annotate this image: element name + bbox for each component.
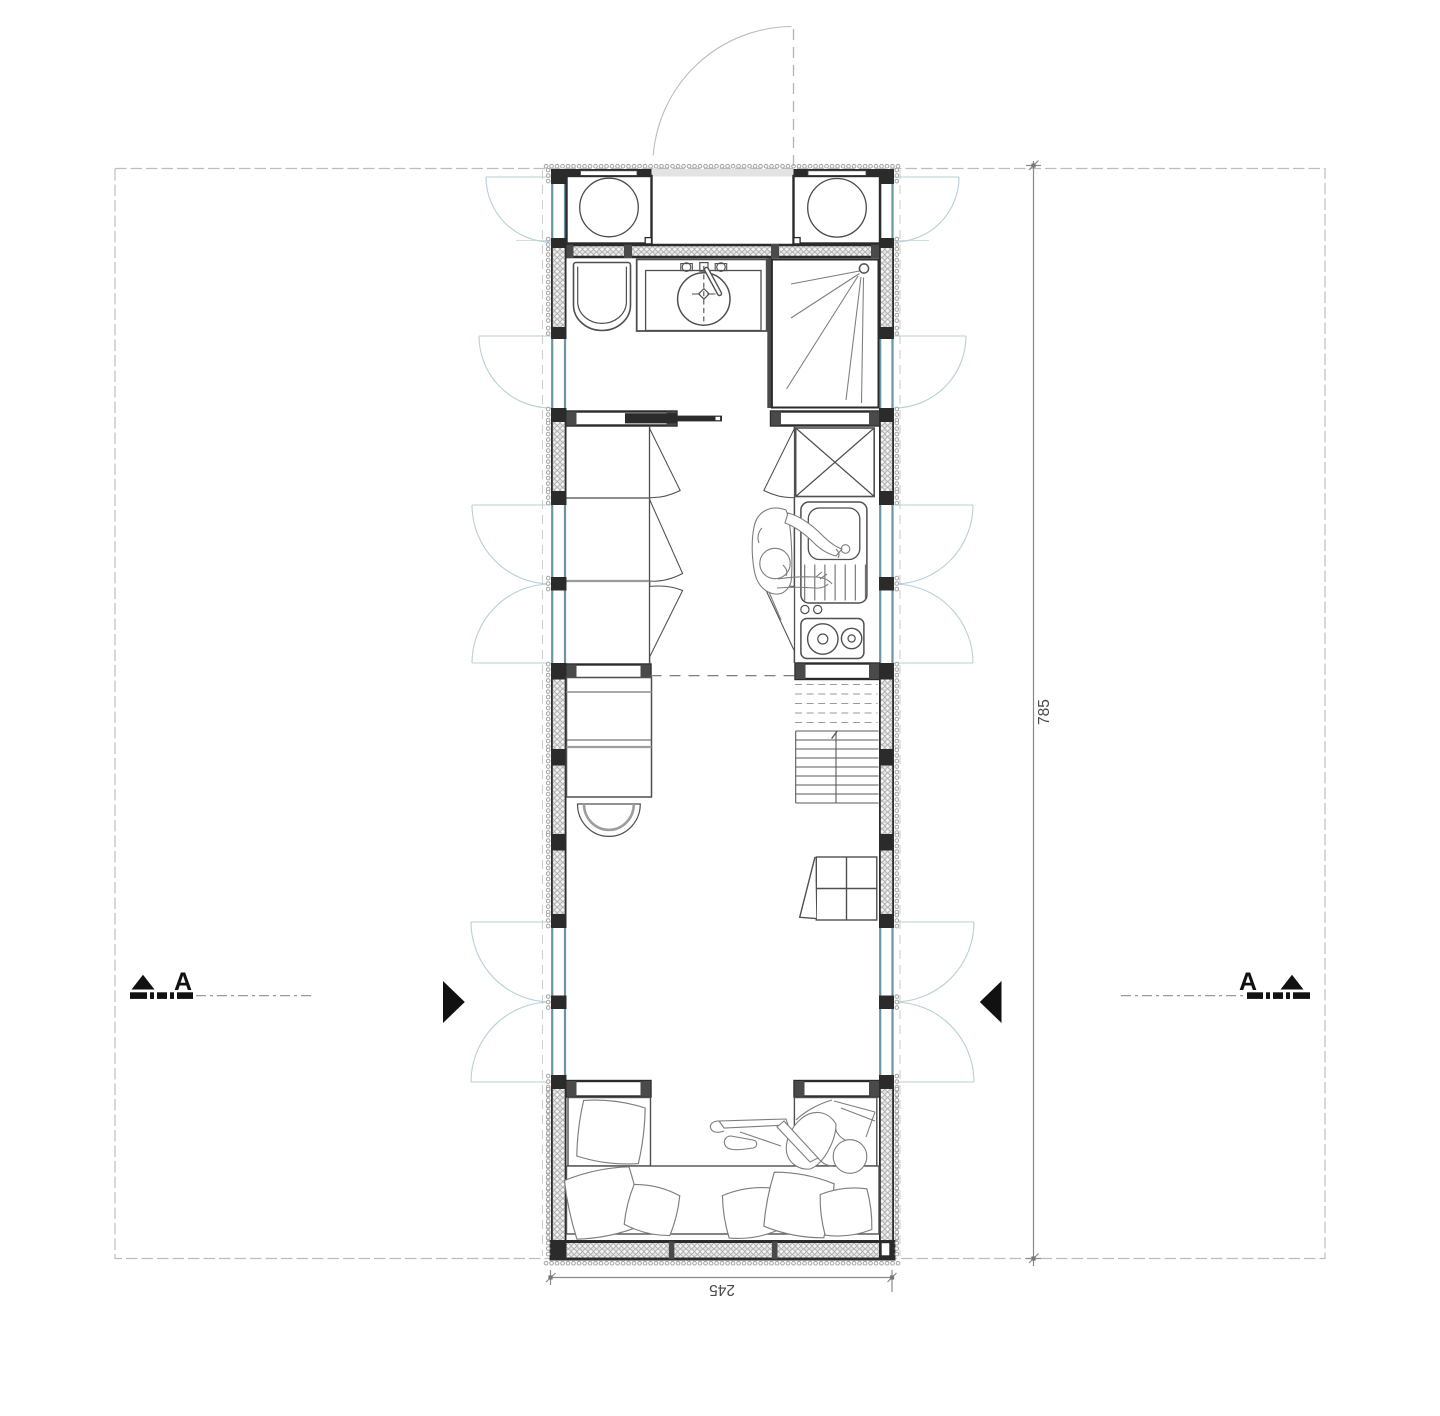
- svg-text:A: A: [174, 968, 192, 996]
- svg-text:245: 245: [709, 1281, 735, 1298]
- svg-text:785: 785: [1036, 699, 1053, 725]
- svg-text:A: A: [1239, 968, 1257, 996]
